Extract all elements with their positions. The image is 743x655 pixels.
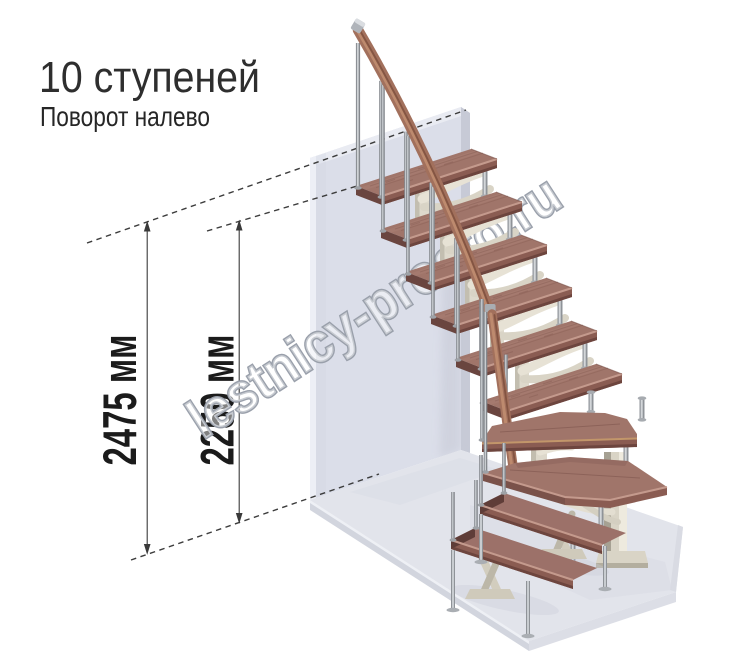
svg-text:10 ступеней: 10 ступеней xyxy=(39,53,260,102)
svg-text:2475 мм: 2475 мм xyxy=(93,335,146,466)
svg-text:Поворот налево: Поворот налево xyxy=(40,101,210,132)
